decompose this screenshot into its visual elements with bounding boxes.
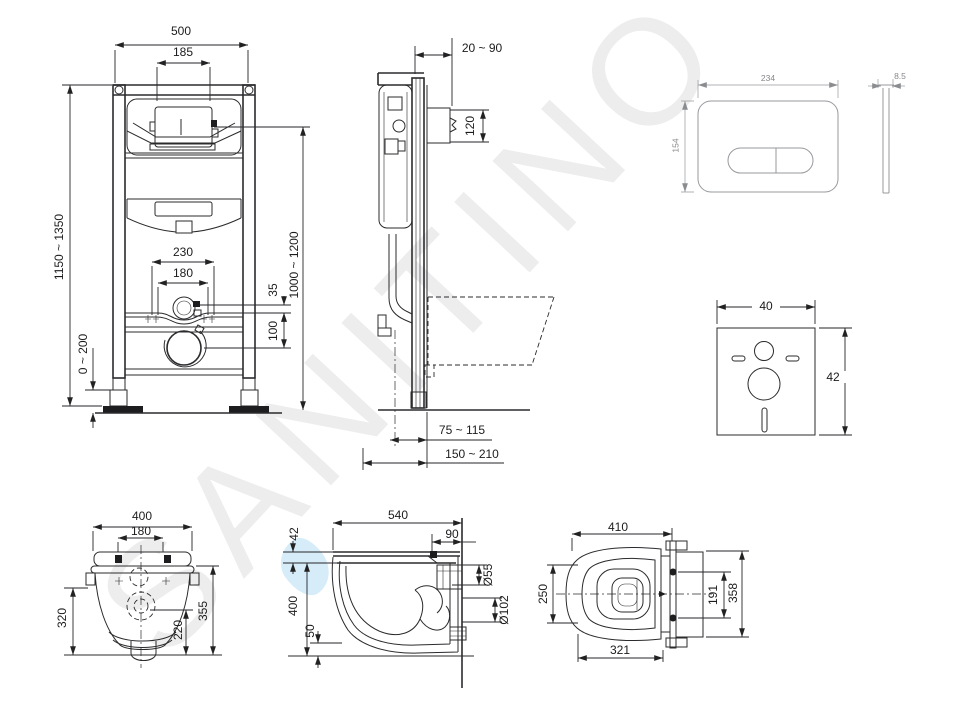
dim-bowl-top-bowl-depth: 321 bbox=[606, 644, 634, 656]
view-bowl-side bbox=[283, 518, 502, 688]
dim-frame-fixing-outer: 230 bbox=[165, 246, 201, 258]
dim-bowl-rear-height-left: 320 bbox=[56, 604, 68, 632]
dim-plate-width: 234 bbox=[755, 74, 781, 83]
dim-bowl-rear-hole-spacing: 180 bbox=[127, 525, 155, 537]
dim-bowl-side-depth: 540 bbox=[383, 509, 413, 521]
dim-pad-width: 40 bbox=[752, 300, 780, 312]
dim-frame-offset-small: 35 bbox=[267, 279, 279, 301]
dim-frame-outlet-height: 1000 ~ 1200 bbox=[288, 219, 300, 311]
dim-side-spigot-length: 120 bbox=[464, 112, 476, 140]
dim-side-outlet-depth: 150 ~ 210 bbox=[438, 448, 506, 460]
dim-bowl-rear-width: 400 bbox=[128, 510, 156, 522]
dim-side-outlet-offset: 75 ~ 115 bbox=[431, 424, 493, 436]
dim-pad-height: 42 bbox=[820, 371, 846, 383]
dim-side-wall-distance: 20 ~ 90 bbox=[454, 42, 510, 54]
dim-frame-height: 1150 ~ 1350 bbox=[53, 201, 65, 293]
technical-drawing-canvas: SANITINO bbox=[0, 0, 960, 709]
dim-bowl-top-seat-width: 250 bbox=[537, 580, 549, 608]
dim-bowl-side-bottom-clearance: 50 bbox=[304, 620, 316, 642]
dim-frame-fixing-inner: 180 bbox=[165, 267, 201, 279]
dim-bowl-side-rear-ledge: 90 bbox=[440, 528, 464, 540]
dim-bowl-rear-hole-height: 355 bbox=[197, 597, 209, 625]
view-flush-plate bbox=[681, 79, 905, 193]
dim-bowl-top-bolt-spacing: 191 bbox=[707, 581, 719, 609]
dim-plate-thickness: 8.5 bbox=[889, 72, 911, 81]
dim-bowl-top-depth: 410 bbox=[604, 521, 632, 533]
dim-bowl-side-inlet-diameter: Ø55 bbox=[482, 560, 494, 590]
dim-bowl-side-seat-height: 42 bbox=[288, 523, 300, 545]
drawing-svg bbox=[0, 0, 960, 709]
dim-frame-offset-mid: 100 bbox=[267, 316, 279, 346]
dim-bowl-side-outlet-diameter: Ø102 bbox=[498, 592, 510, 628]
dim-frame-overall-width: 500 bbox=[163, 25, 199, 37]
view-sound-pad bbox=[717, 300, 852, 435]
dim-bowl-top-overall-width: 358 bbox=[727, 579, 739, 607]
dim-bowl-side-body-height: 400 bbox=[287, 592, 299, 620]
dim-bowl-rear-drain-height: 220 bbox=[172, 616, 184, 644]
dim-frame-cistern-width: 185 bbox=[165, 46, 201, 58]
view-frame-side bbox=[363, 38, 554, 470]
dim-frame-leg-adjust: 0 ~ 200 bbox=[77, 327, 89, 381]
view-frame-front bbox=[62, 45, 310, 428]
dim-plate-height: 154 bbox=[672, 134, 681, 158]
